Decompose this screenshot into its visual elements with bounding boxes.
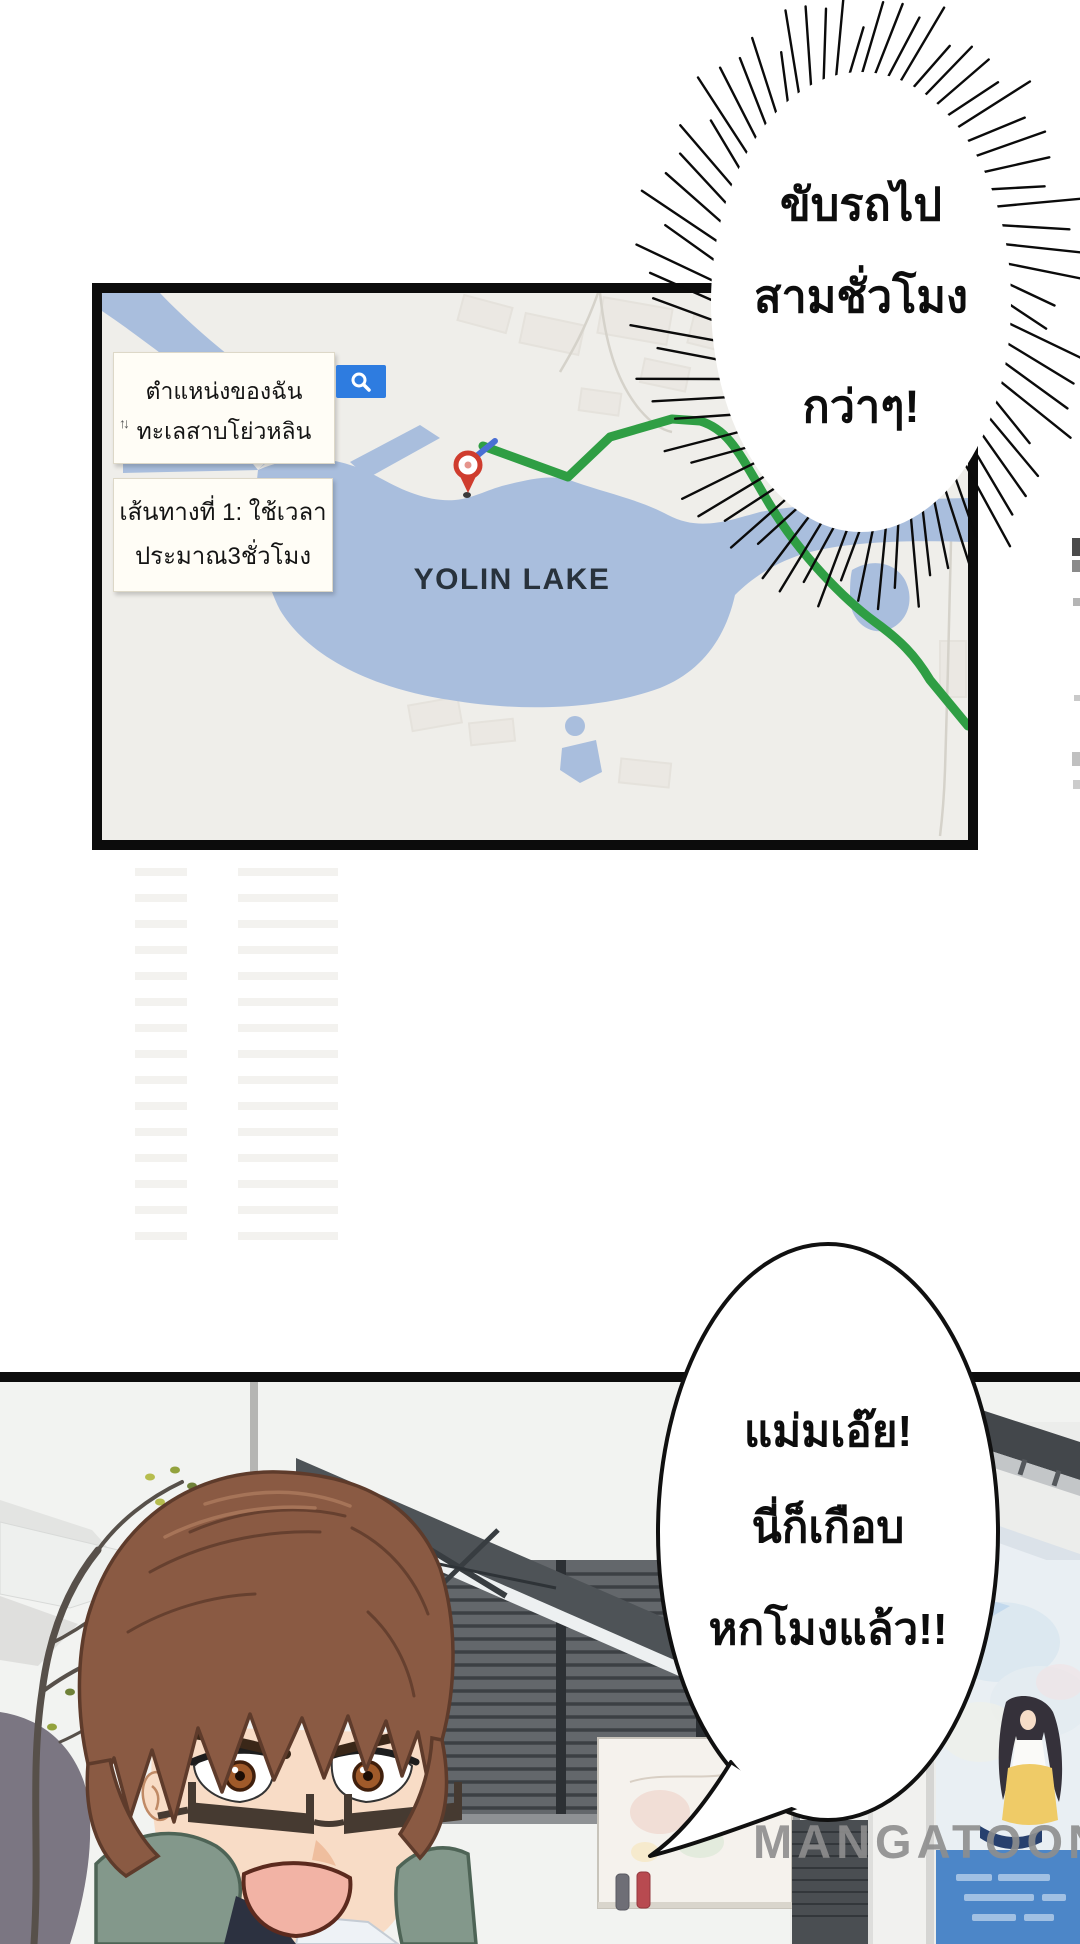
bottom-bubble-line3: หกโมงแล้ว!! [660,1600,996,1660]
route-box-line2: ประมาณ3ชั่วโมง [114,535,332,579]
watermark: MANGATOON [753,1814,1080,1869]
map-search-box: ↑↓ ตำแหน่งของฉัน ทะเลสาบโย่วหลิน [113,352,335,464]
bottom-bubble-line1: แม่มเอ๊ย! [660,1402,996,1462]
bottom-bubble-line2: นี่ก็เกือบ [660,1498,996,1558]
search-box-line1: ตำแหน่งของฉัน [114,371,334,411]
character [79,1472,476,1944]
marker-gray [616,1874,629,1910]
top-bubble-line1: ขับรถไป [716,176,1006,234]
route-info-box: เส้นทางที่ 1: ใช้เวลา ประมาณ3ชั่วโมง [113,478,333,592]
panel-top-border [0,1372,1080,1382]
swap-arrows-icon: ↑↓ [119,403,127,443]
right-edge-mark [1073,780,1080,789]
right-edge-mark [1072,538,1080,556]
comic-page: ↑↓ ตำแหน่งของฉัน ทะเลสาบโย่วหลิน เส้นทาง… [0,0,1080,1944]
route-box-line1: เส้นทางที่ 1: ใช้เวลา [114,491,332,535]
map-panel: ↑↓ ตำแหน่งของฉัน ทะเลสาบโย่วหลิน เส้นทาง… [92,283,978,850]
marker-red [637,1872,650,1908]
lake-name-label: YOLIN LAKE [402,563,622,597]
right-edge-mark [1072,752,1080,766]
jacket-collar-right [396,1848,476,1944]
top-bubble-line3: กว่าๆ! [716,378,1006,436]
search-button [336,365,386,398]
faint-left-dashes-a [135,868,187,1258]
search-icon [349,370,373,394]
search-box-line2: ทะเลสาบโย่วหลิน [114,411,334,451]
right-edge-mark [1072,560,1080,572]
right-edge-mark [1074,695,1080,701]
faint-left-dashes-b [238,868,338,1258]
right-edge-mark [1073,598,1080,606]
white-column [868,1622,934,1944]
top-bubble-line2: สามชั่วโมง [716,268,1006,326]
